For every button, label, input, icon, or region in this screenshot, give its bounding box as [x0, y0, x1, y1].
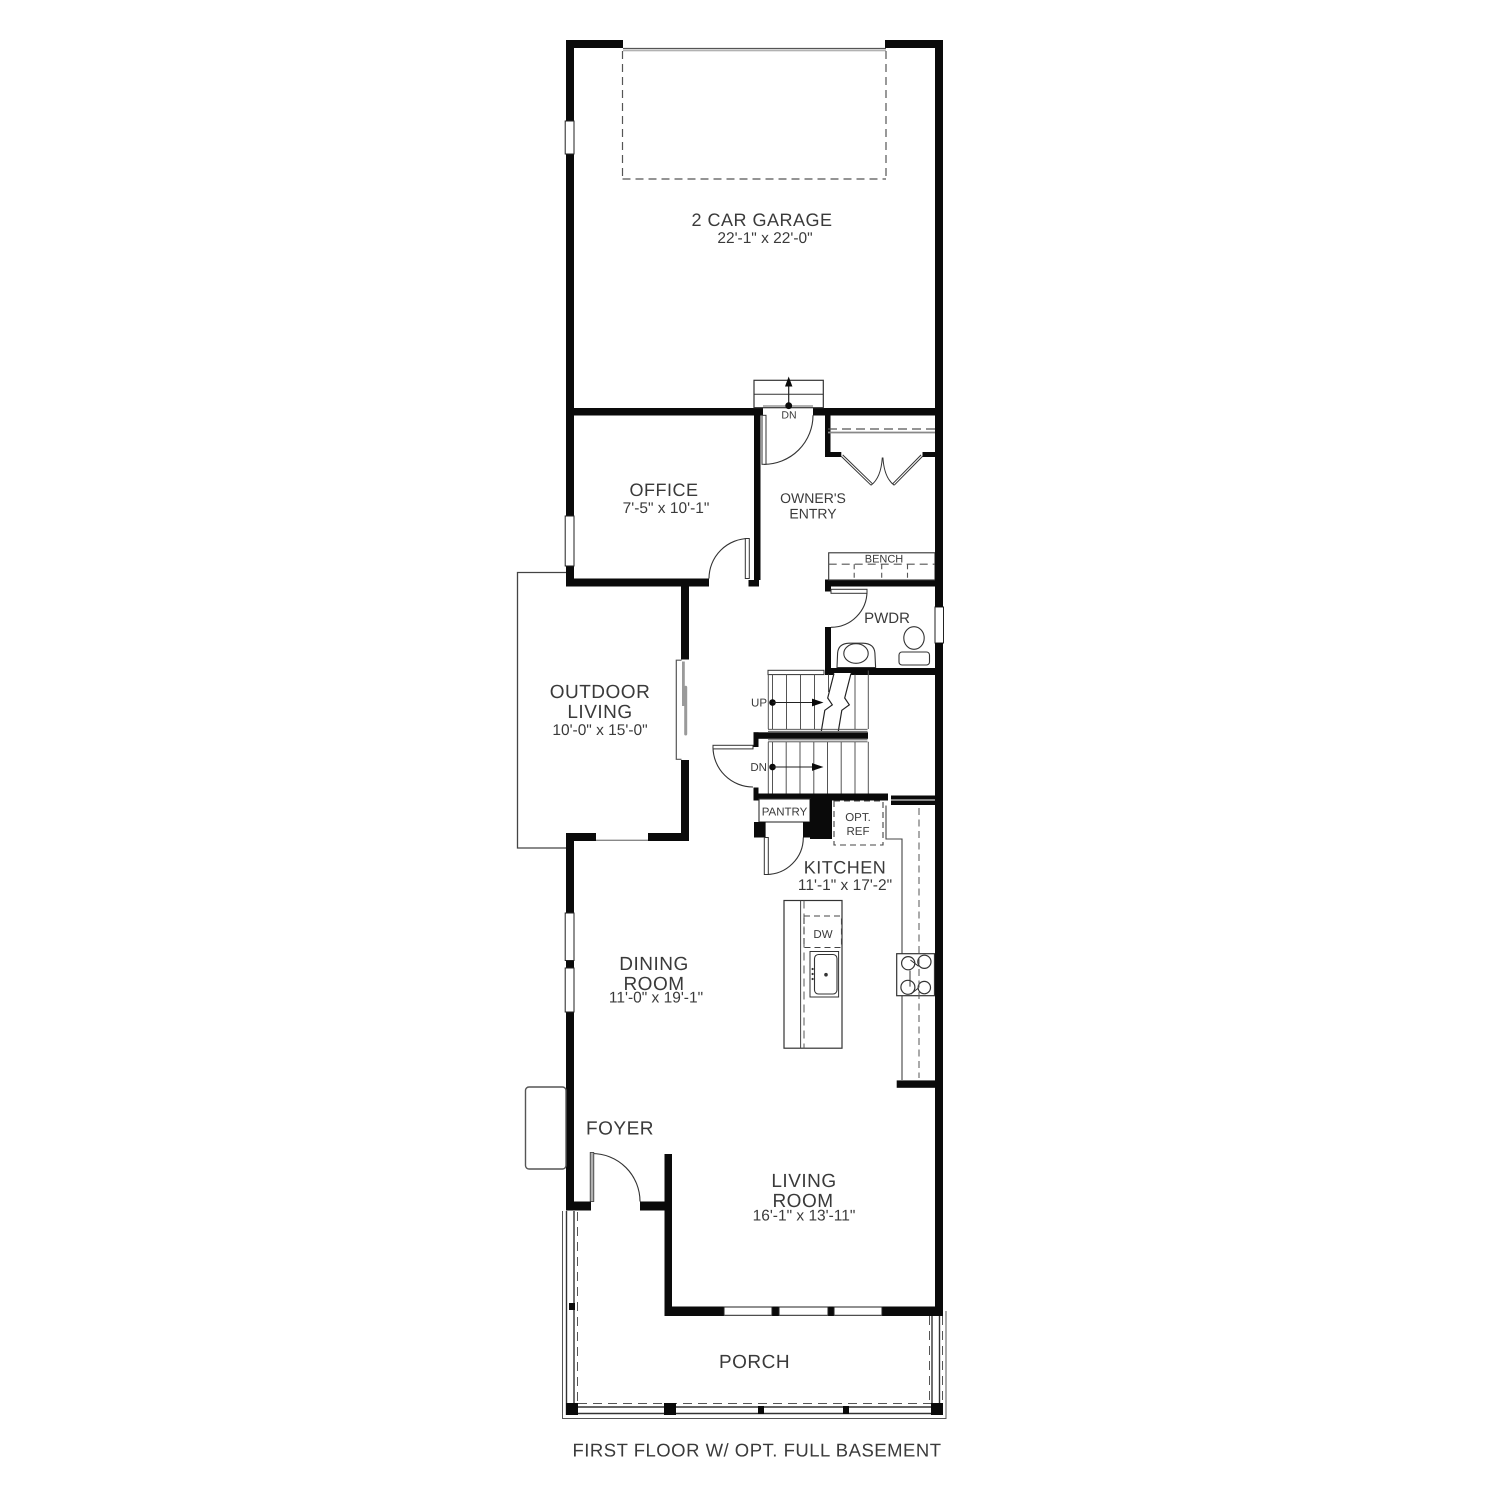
svg-text:DW: DW	[813, 929, 832, 941]
svg-text:DN: DN	[750, 762, 767, 774]
svg-text:REF: REF	[847, 826, 870, 838]
svg-text:16'-1" x 13'-11": 16'-1" x 13'-11"	[753, 1208, 856, 1225]
svg-text:DINING: DINING	[619, 954, 689, 975]
svg-text:22'-1" x 22'-0": 22'-1" x 22'-0"	[717, 230, 812, 247]
svg-text:LIVING: LIVING	[771, 1171, 836, 1192]
svg-text:UP: UP	[751, 698, 767, 710]
svg-text:OFFICE: OFFICE	[630, 480, 699, 500]
svg-text:LIVING: LIVING	[567, 702, 632, 723]
svg-text:7'-5" x 10'-1": 7'-5" x 10'-1"	[623, 500, 710, 517]
svg-text:11'-0" x 19'-1": 11'-0" x 19'-1"	[609, 990, 703, 1007]
svg-text:11'-1" x 17'-2": 11'-1" x 17'-2"	[798, 877, 892, 894]
svg-text:FOYER: FOYER	[586, 1119, 654, 1140]
svg-text:OPT.: OPT.	[845, 812, 871, 824]
svg-text:ENTRY: ENTRY	[789, 506, 837, 522]
svg-text:FIRST FLOOR W/ OPT. FULL BASEM: FIRST FLOOR W/ OPT. FULL BASEMENT	[572, 1440, 941, 1461]
svg-text:OUTDOOR: OUTDOOR	[550, 682, 651, 703]
svg-text:PANTRY: PANTRY	[762, 807, 808, 819]
svg-text:PORCH: PORCH	[719, 1352, 790, 1373]
svg-text:10'-0" x 15'-0": 10'-0" x 15'-0"	[552, 722, 647, 739]
svg-text:2 CAR GARAGE: 2 CAR GARAGE	[691, 210, 832, 230]
svg-text:DN: DN	[781, 410, 796, 422]
svg-text:KITCHEN: KITCHEN	[804, 858, 887, 878]
svg-text:BENCH: BENCH	[865, 554, 904, 566]
svg-text:OWNER'S: OWNER'S	[780, 490, 846, 506]
svg-text:PWDR: PWDR	[864, 610, 910, 627]
